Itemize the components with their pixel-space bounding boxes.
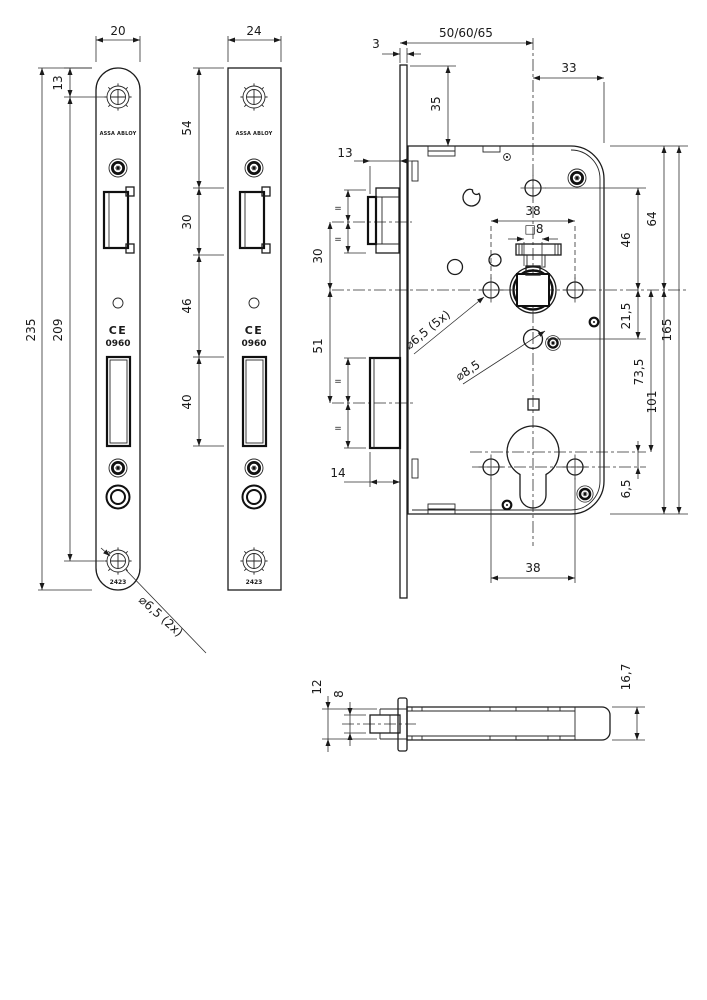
mount-hole-icon (563, 278, 588, 303)
svg-text:33: 33 (561, 61, 576, 75)
brand-label: ASSA ABLOY (100, 131, 137, 137)
side-view: 12 8 16,7 (310, 664, 645, 752)
model-number: 2423 (110, 579, 127, 586)
mount-hole-icon (479, 455, 504, 480)
dim-follower-to-bolt-51: 51 (311, 290, 330, 403)
svg-text:6,5: 6,5 (619, 479, 633, 498)
svg-text:101: 101 (645, 391, 659, 414)
dim-case-height-165: 165 (660, 146, 679, 514)
svg-text:30: 30 (311, 248, 325, 263)
latch-cutout (240, 187, 270, 253)
svg-text:⌀8,5: ⌀8,5 (453, 357, 483, 383)
lock-case-view: 50/60/65 3 33 35 13 38 (311, 26, 688, 598)
svg-text:38: 38 (525, 561, 540, 575)
latch-bolt (368, 188, 399, 253)
dim-faceplate-thickness-3: 3 (372, 37, 421, 54)
ce-mark: CE (109, 324, 128, 337)
mount-hole-icon (563, 455, 588, 480)
dim-plate-top-to-case-35: 35 (410, 66, 456, 146)
model-number: 2423 (246, 579, 263, 586)
torx-screw-icon (577, 486, 593, 502)
svg-text:8: 8 (332, 690, 346, 698)
leader-screw-holes-6-5-2x: ⌀6,5 (2x) (101, 548, 206, 653)
deadbolt-cutout (243, 357, 266, 446)
case-section-tabs (412, 707, 560, 740)
svg-text:=: = (334, 424, 342, 434)
svg-text:20: 20 (110, 24, 125, 38)
dim-cylinder-to-screws-6-5: 6,5 (619, 441, 638, 499)
svg-text:30: 30 (180, 214, 194, 229)
latch-cutout (104, 187, 134, 253)
svg-text:38: 38 (525, 204, 540, 218)
dim-plate-width-20: 20 (96, 24, 140, 62)
dim-latch-symmetric: = = (334, 190, 366, 253)
svg-text:165: 165 (660, 319, 674, 342)
torx-screw-icon (568, 169, 586, 187)
svg-text:⌀6,5 (5x): ⌀6,5 (5x) (402, 307, 453, 352)
cylinder-hole-icon (243, 486, 266, 509)
dim-bolt-protrusion-14: 14 (330, 452, 400, 487)
cylinder-hole-icon (107, 486, 130, 509)
svg-text:3: 3 (372, 37, 380, 51)
dim-case-thickness-16-7: 16,7 (612, 664, 645, 740)
svg-text:13: 13 (51, 75, 65, 90)
svg-text:12: 12 (310, 679, 324, 694)
front-plate-square-view: ASSA ABLOY CE 0960 2423 24 (180, 24, 281, 590)
svg-text:64: 64 (645, 211, 659, 226)
dim-case-top-to-follower-64: 64 (645, 146, 664, 290)
svg-text:24: 24 (246, 24, 261, 38)
svg-text:35: 35 (429, 96, 443, 111)
dim-latch-to-follower-30: 30 (311, 222, 330, 290)
svg-text:=: = (334, 204, 342, 214)
svg-text:16,7: 16,7 (619, 664, 633, 691)
svg-text:235: 235 (24, 319, 38, 342)
torx-screw-icon (245, 159, 263, 177)
ce-mark: CE (245, 324, 264, 337)
svg-text:□8: □8 (525, 222, 544, 236)
front-plate-rounded-view: ASSA ABLOY CE 0960 2423 20 (24, 24, 206, 653)
deadbolt-cutout (107, 357, 130, 446)
svg-text:=: = (334, 235, 342, 245)
rivet-icon (590, 318, 599, 327)
dim-chain-left: 54 30 46 40 (180, 68, 224, 446)
svg-text:51: 51 (311, 338, 325, 353)
svg-text:13: 13 (337, 146, 352, 160)
pin-hole-icon (504, 154, 511, 161)
dim-latch-protrusion-13: 13 (337, 146, 415, 194)
round-hole (448, 260, 463, 275)
square-hole (528, 399, 539, 410)
dim-case-depth-33: 33 (533, 61, 604, 143)
dim-screw-spacing-38: 38 (491, 204, 575, 279)
mount-hole-icon (521, 176, 546, 201)
brand-label: ASSA ABLOY (236, 131, 273, 137)
dim-plate-width-24: 24 (228, 24, 281, 62)
torx-screw-icon (109, 159, 127, 177)
svg-text:50/60/65: 50/60/65 (439, 26, 493, 40)
technical-drawing-page: ASSA ABLOY CE 0960 2423 20 (0, 0, 707, 1000)
svg-text:=: = (334, 377, 342, 387)
follower-hub (510, 244, 561, 313)
svg-text:14: 14 (330, 466, 345, 480)
ce-number: 0960 (105, 339, 130, 349)
dim-follower-to-cylinder-73-5: 73,5 (632, 290, 651, 452)
small-hole (249, 298, 259, 308)
svg-text:46: 46 (619, 232, 633, 247)
screw-bottom-icon (104, 547, 131, 574)
dim-latch-tip-8: 8 (332, 690, 366, 746)
faceplate-edge (400, 65, 407, 598)
svg-text:21,5: 21,5 (619, 303, 633, 330)
torx-screw-icon (245, 459, 263, 477)
leader-holes-6-5-5x: ⌀6,5 (5x) (402, 297, 484, 354)
case-inner-wall (412, 150, 600, 510)
dim-backset: 50/60/65 (400, 26, 533, 43)
dim-hole-to-follower-46: 46 (619, 188, 638, 290)
screw-top-icon (104, 83, 131, 110)
svg-text:40: 40 (180, 394, 194, 409)
small-hole (113, 298, 123, 308)
screw-top-icon (240, 83, 267, 110)
torx-screw-icon (546, 336, 561, 351)
rivet-icon (503, 501, 512, 510)
screw-bottom-icon (240, 547, 267, 574)
svg-text:⌀6,5 (2x): ⌀6,5 (2x) (136, 593, 186, 640)
irregular-hole (463, 189, 480, 206)
svg-text:73,5: 73,5 (632, 359, 646, 386)
torx-screw-icon (109, 459, 127, 477)
case-section (407, 707, 610, 740)
ce-number: 0960 (241, 339, 266, 349)
svg-text:46: 46 (180, 298, 194, 313)
svg-text:209: 209 (51, 319, 65, 342)
mortise-lock-drawing: ASSA ABLOY CE 0960 2423 20 (0, 0, 707, 1000)
leader-hole-8-5: ⌀8,5 (453, 331, 545, 384)
dim-follower-to-hole-21-5: 21,5 (619, 290, 638, 339)
svg-text:54: 54 (180, 120, 194, 135)
